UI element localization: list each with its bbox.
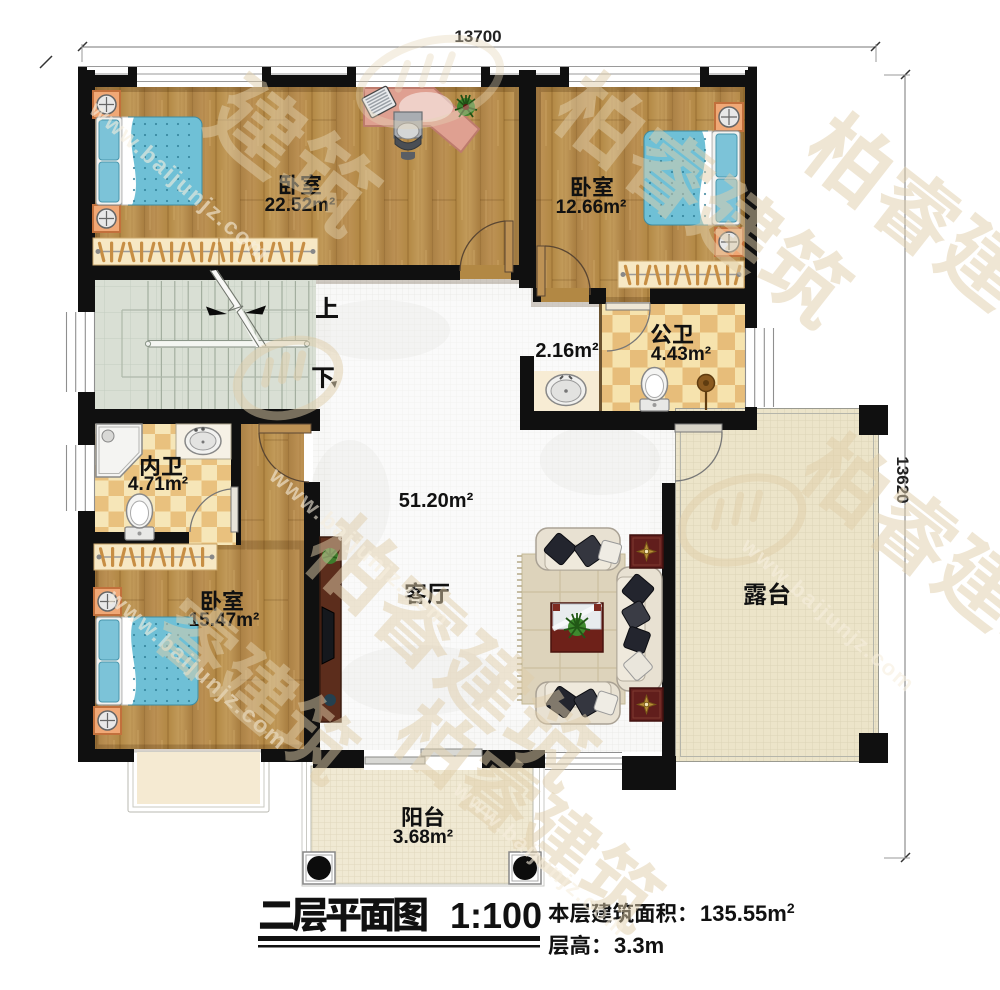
svg-text:13700: 13700 bbox=[454, 27, 501, 46]
svg-text:12.66m²: 12.66m² bbox=[556, 197, 627, 218]
svg-text:3.3m: 3.3m bbox=[614, 933, 664, 958]
svg-text:2.16m²: 2.16m² bbox=[535, 340, 599, 362]
svg-text:4.71m²: 4.71m² bbox=[128, 474, 188, 495]
svg-text:4.43m²: 4.43m² bbox=[651, 344, 711, 365]
svg-text:15.47m²: 15.47m² bbox=[189, 610, 260, 631]
svg-text:22.52m²: 22.52m² bbox=[265, 195, 336, 216]
svg-text:13620: 13620 bbox=[893, 456, 912, 503]
svg-text:3.68m²: 3.68m² bbox=[393, 827, 453, 848]
svg-text:51.20m²: 51.20m² bbox=[399, 490, 474, 512]
svg-text:135.55m2: 135.55m2 bbox=[700, 900, 795, 926]
svg-text:1:100: 1:100 bbox=[450, 895, 542, 936]
